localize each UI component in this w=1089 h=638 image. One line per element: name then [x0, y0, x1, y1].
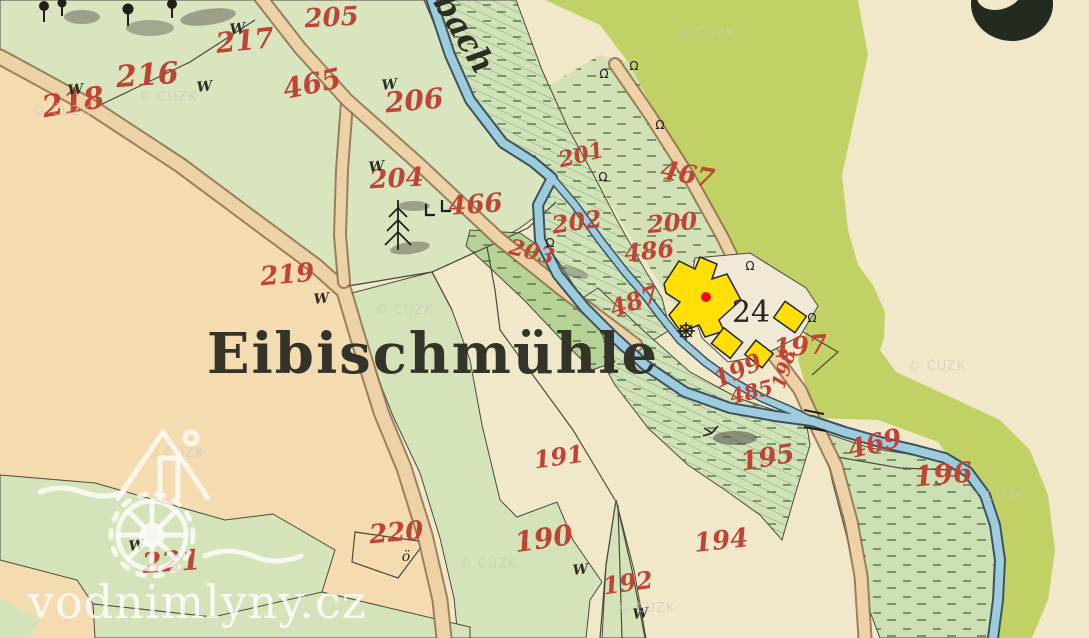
parcel-label-486: 486: [623, 233, 676, 267]
sluice-symbol: Ω: [807, 311, 816, 325]
mill-location-marker: [701, 292, 711, 302]
meadow-symbol: W: [381, 76, 400, 94]
cuzk-watermark: © ČÚZK: [33, 103, 92, 119]
cuzk-watermark: © ČÚZK: [677, 25, 736, 41]
cuzk-watermark: © ČÚZK: [375, 302, 434, 318]
garden-symbol-mark: ö: [402, 549, 410, 565]
road-fork: [340, 102, 347, 282]
cuzk-watermark: © ČÚZK: [617, 600, 676, 616]
meadow-symbol: W: [196, 78, 215, 96]
sluice-symbol: Ω: [545, 236, 554, 250]
parcel-label-219: 219: [258, 258, 316, 293]
logo-waterwheel-spokes: [118, 501, 186, 569]
sluice-symbol: Ω: [598, 170, 607, 184]
meadow-symbol: W: [229, 20, 248, 38]
sluice-symbol: Ω: [599, 67, 608, 81]
sluice-symbol: Ω: [629, 59, 638, 73]
sluice-symbol: Ω: [745, 259, 754, 273]
site-watermark-text: vodnimlyny.cz: [27, 575, 367, 629]
cuzk-watermark: © ČÚZK: [967, 488, 1026, 504]
cuzk-watermark: © ČÚZK: [459, 556, 518, 572]
meadow-symbol: W: [368, 158, 387, 176]
parcel-label-196: 196: [913, 456, 974, 494]
parcel-label-220: 220: [367, 516, 425, 551]
sluice-symbol: Ω: [655, 118, 664, 132]
parcel-label-466: 466: [447, 188, 503, 222]
cuzk-watermark: © ČÚZK: [139, 89, 198, 105]
meadow-symbol: W: [313, 290, 332, 308]
place-title: Eibischmühle: [207, 321, 659, 387]
parcel-label-205: 205: [303, 2, 360, 35]
meadow-symbol: W: [572, 561, 591, 579]
parcel-label-194: 194: [693, 523, 750, 559]
cuzk-watermark: © ČÚZK: [908, 358, 967, 374]
historical-cadastral-map[interactable]: Eibischmühle bach 24 ö 21821621720546520…: [0, 0, 1089, 638]
meadow-symbol: W: [67, 81, 86, 99]
house-number-label: 24: [732, 295, 770, 330]
